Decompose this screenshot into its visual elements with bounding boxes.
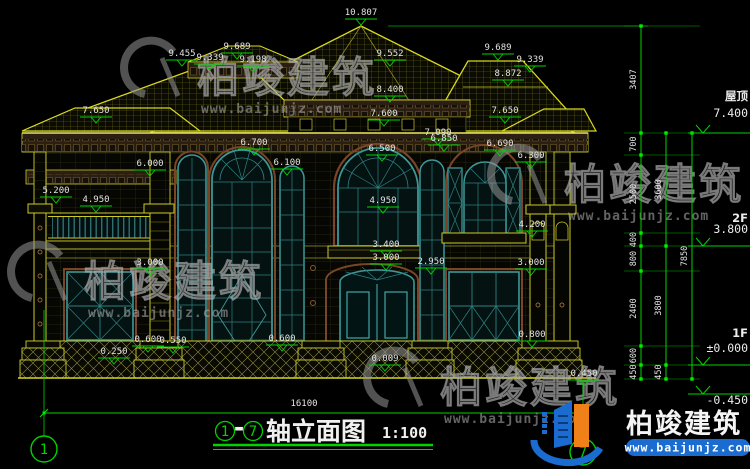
svg-text:0.800: 0.800	[518, 330, 545, 340]
svg-text:0.250: 0.250	[100, 347, 127, 357]
balcony-left	[46, 213, 156, 249]
elevation-mark: 10.807	[345, 8, 378, 25]
svg-text:5.200: 5.200	[42, 186, 69, 196]
window-stair-narrow	[175, 152, 208, 356]
dim-chain-label: 400	[629, 232, 639, 247]
svg-text:1: 1	[40, 442, 48, 458]
brand-logo: 柏竣建筑 www.baijunjz.com	[534, 401, 750, 463]
svg-text:6.500: 6.500	[368, 144, 395, 154]
watermark-url: www.baijunjz.com	[201, 102, 342, 117]
svg-text:7.650: 7.650	[491, 106, 518, 116]
svg-text:9.689: 9.689	[484, 43, 511, 53]
svg-text:10.807: 10.807	[345, 8, 378, 18]
dim-chain-label: 700	[629, 136, 639, 151]
svg-text:4.950: 4.950	[369, 196, 396, 206]
svg-text:3.800: 3.800	[713, 222, 748, 236]
watermark-url: www.baijunjz.com	[88, 306, 229, 321]
window-right-1f	[446, 269, 522, 343]
svg-text:8.400: 8.400	[376, 85, 403, 95]
svg-text:-0.450: -0.450	[706, 393, 748, 407]
level-marker: 1F±0.000	[688, 326, 750, 365]
svg-text:6.000: 6.000	[136, 159, 163, 169]
elevation-drawing: 柏竣建筑www.baijunjz.com柏竣建筑www.baijunjz.com…	[0, 0, 750, 469]
cad-elevation-screenshot: 柏竣建筑www.baijunjz.com柏竣建筑www.baijunjz.com…	[0, 0, 750, 469]
drawing-title: 轴立面图	[266, 417, 366, 446]
svg-text:0.009: 0.009	[371, 354, 398, 364]
svg-text:3.400: 3.400	[372, 240, 399, 250]
svg-text:±0.000: ±0.000	[706, 341, 748, 355]
svg-text:6.850: 6.850	[430, 134, 457, 144]
svg-text:9.455: 9.455	[168, 49, 195, 59]
svg-text:0.450: 0.450	[570, 369, 597, 379]
svg-text:8.872: 8.872	[494, 69, 521, 79]
svg-text:6.700: 6.700	[240, 138, 267, 148]
dim-chain-label: 7850	[680, 246, 690, 266]
balcony-slab-right	[442, 233, 526, 243]
porch-roof-left	[22, 108, 200, 131]
watermark-brand: 柏竣建筑	[197, 53, 377, 102]
svg-text:6.100: 6.100	[273, 158, 300, 168]
svg-text:9.198: 9.198	[239, 55, 266, 65]
overall-dim-text: 16100	[290, 399, 317, 409]
dim-chain-label: 450	[654, 364, 664, 379]
svg-text:6.690: 6.690	[486, 139, 513, 149]
dim-chain-label: 3600	[654, 179, 664, 199]
svg-text:3.000: 3.000	[372, 253, 399, 263]
svg-text:9.339: 9.339	[516, 55, 543, 65]
dim-chain-label: 3800	[654, 295, 664, 315]
svg-text:9.339: 9.339	[196, 53, 223, 63]
dim-chain-label: 450	[629, 364, 639, 379]
watermark-brand: 柏竣建筑	[84, 257, 264, 306]
svg-text:0.600: 0.600	[268, 334, 295, 344]
svg-text:6.300: 6.300	[517, 151, 544, 161]
svg-text:9.689: 9.689	[223, 42, 250, 52]
svg-text:7.600: 7.600	[370, 109, 397, 119]
dim-chain: 340770025004008002400600450	[629, 24, 643, 380]
axis-from: 1	[221, 424, 229, 440]
level-marker: -0.450	[688, 386, 750, 407]
window-stair-wide	[209, 147, 275, 357]
dim-chain-label: 2500	[629, 184, 639, 204]
svg-text:0.550: 0.550	[159, 336, 186, 346]
svg-text:屋顶: 屋顶	[725, 89, 748, 103]
dim-chain-label: 600	[629, 348, 639, 363]
svg-text:0.600: 0.600	[134, 335, 161, 345]
svg-text:7.650: 7.650	[82, 106, 109, 116]
svg-text:4.200: 4.200	[518, 220, 545, 230]
title-block: 1 - 7 轴立面图 1:100	[213, 413, 433, 450]
elevation-mark: 9.689	[482, 43, 514, 60]
level-marker: 屋顶7.400	[688, 89, 750, 133]
logo-brand-text: 柏竣建筑	[626, 408, 742, 440]
svg-text:3.000: 3.000	[517, 258, 544, 268]
axis-to: 7	[249, 424, 257, 440]
window-stair-strip	[280, 166, 304, 355]
watermark-url: www.baijunjz.com	[568, 209, 709, 224]
svg-text:4.950: 4.950	[82, 195, 109, 205]
svg-text:9.552: 9.552	[376, 49, 403, 59]
level-markers: 屋顶7.4002F3.8001F±0.000-0.450	[688, 89, 750, 407]
logo-url-text: www.baijunjz.com	[625, 441, 750, 455]
dim-chain-label: 800	[629, 251, 639, 266]
dim-chain-label: 3407	[629, 69, 639, 89]
balcony-left-slab	[46, 241, 156, 249]
svg-text:1F: 1F	[732, 326, 748, 340]
svg-text:2.950: 2.950	[417, 257, 444, 267]
svg-text:3.000: 3.000	[136, 258, 163, 268]
drawing-scale: 1:100	[382, 424, 427, 442]
dim-chain-label: 2400	[629, 298, 639, 318]
svg-text:7.400: 7.400	[713, 106, 748, 120]
